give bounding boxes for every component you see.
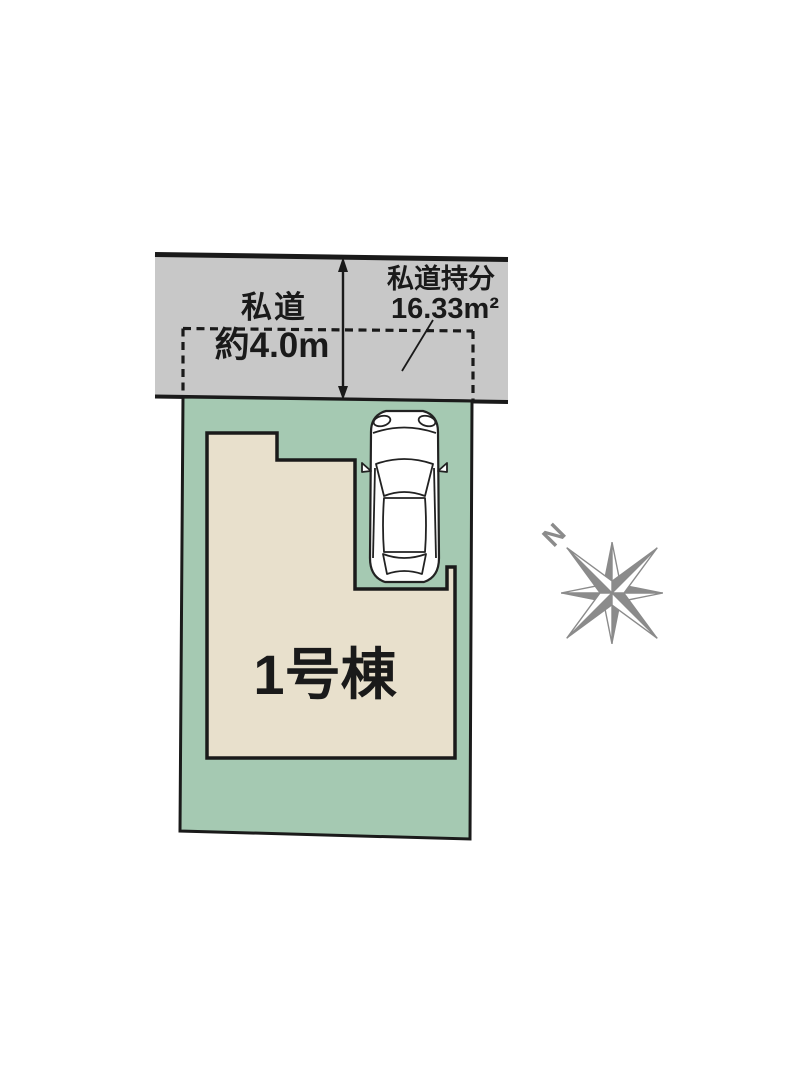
road-share-area: 16.33m² — [391, 293, 499, 325]
compass-rose: N — [498, 479, 702, 683]
compass-north-label: N — [537, 518, 572, 553]
car-windshield — [376, 459, 433, 496]
road-share-title: 私道持分 — [387, 263, 495, 294]
road-width-label: 約4.0m — [215, 326, 330, 365]
site-plan-canvas: N 私道 約4.0m 私道持分 16.33m² 1号棟 — [0, 0, 802, 1088]
road-name-label: 私道 — [241, 290, 307, 325]
car-illustration — [362, 411, 447, 582]
car-roof — [383, 498, 426, 552]
site-plan-diagram: N 私道 約4.0m 私道持分 16.33m² 1号棟 — [0, 0, 802, 1088]
car-body — [370, 411, 439, 582]
building-number-label: 1号棟 — [253, 643, 397, 706]
